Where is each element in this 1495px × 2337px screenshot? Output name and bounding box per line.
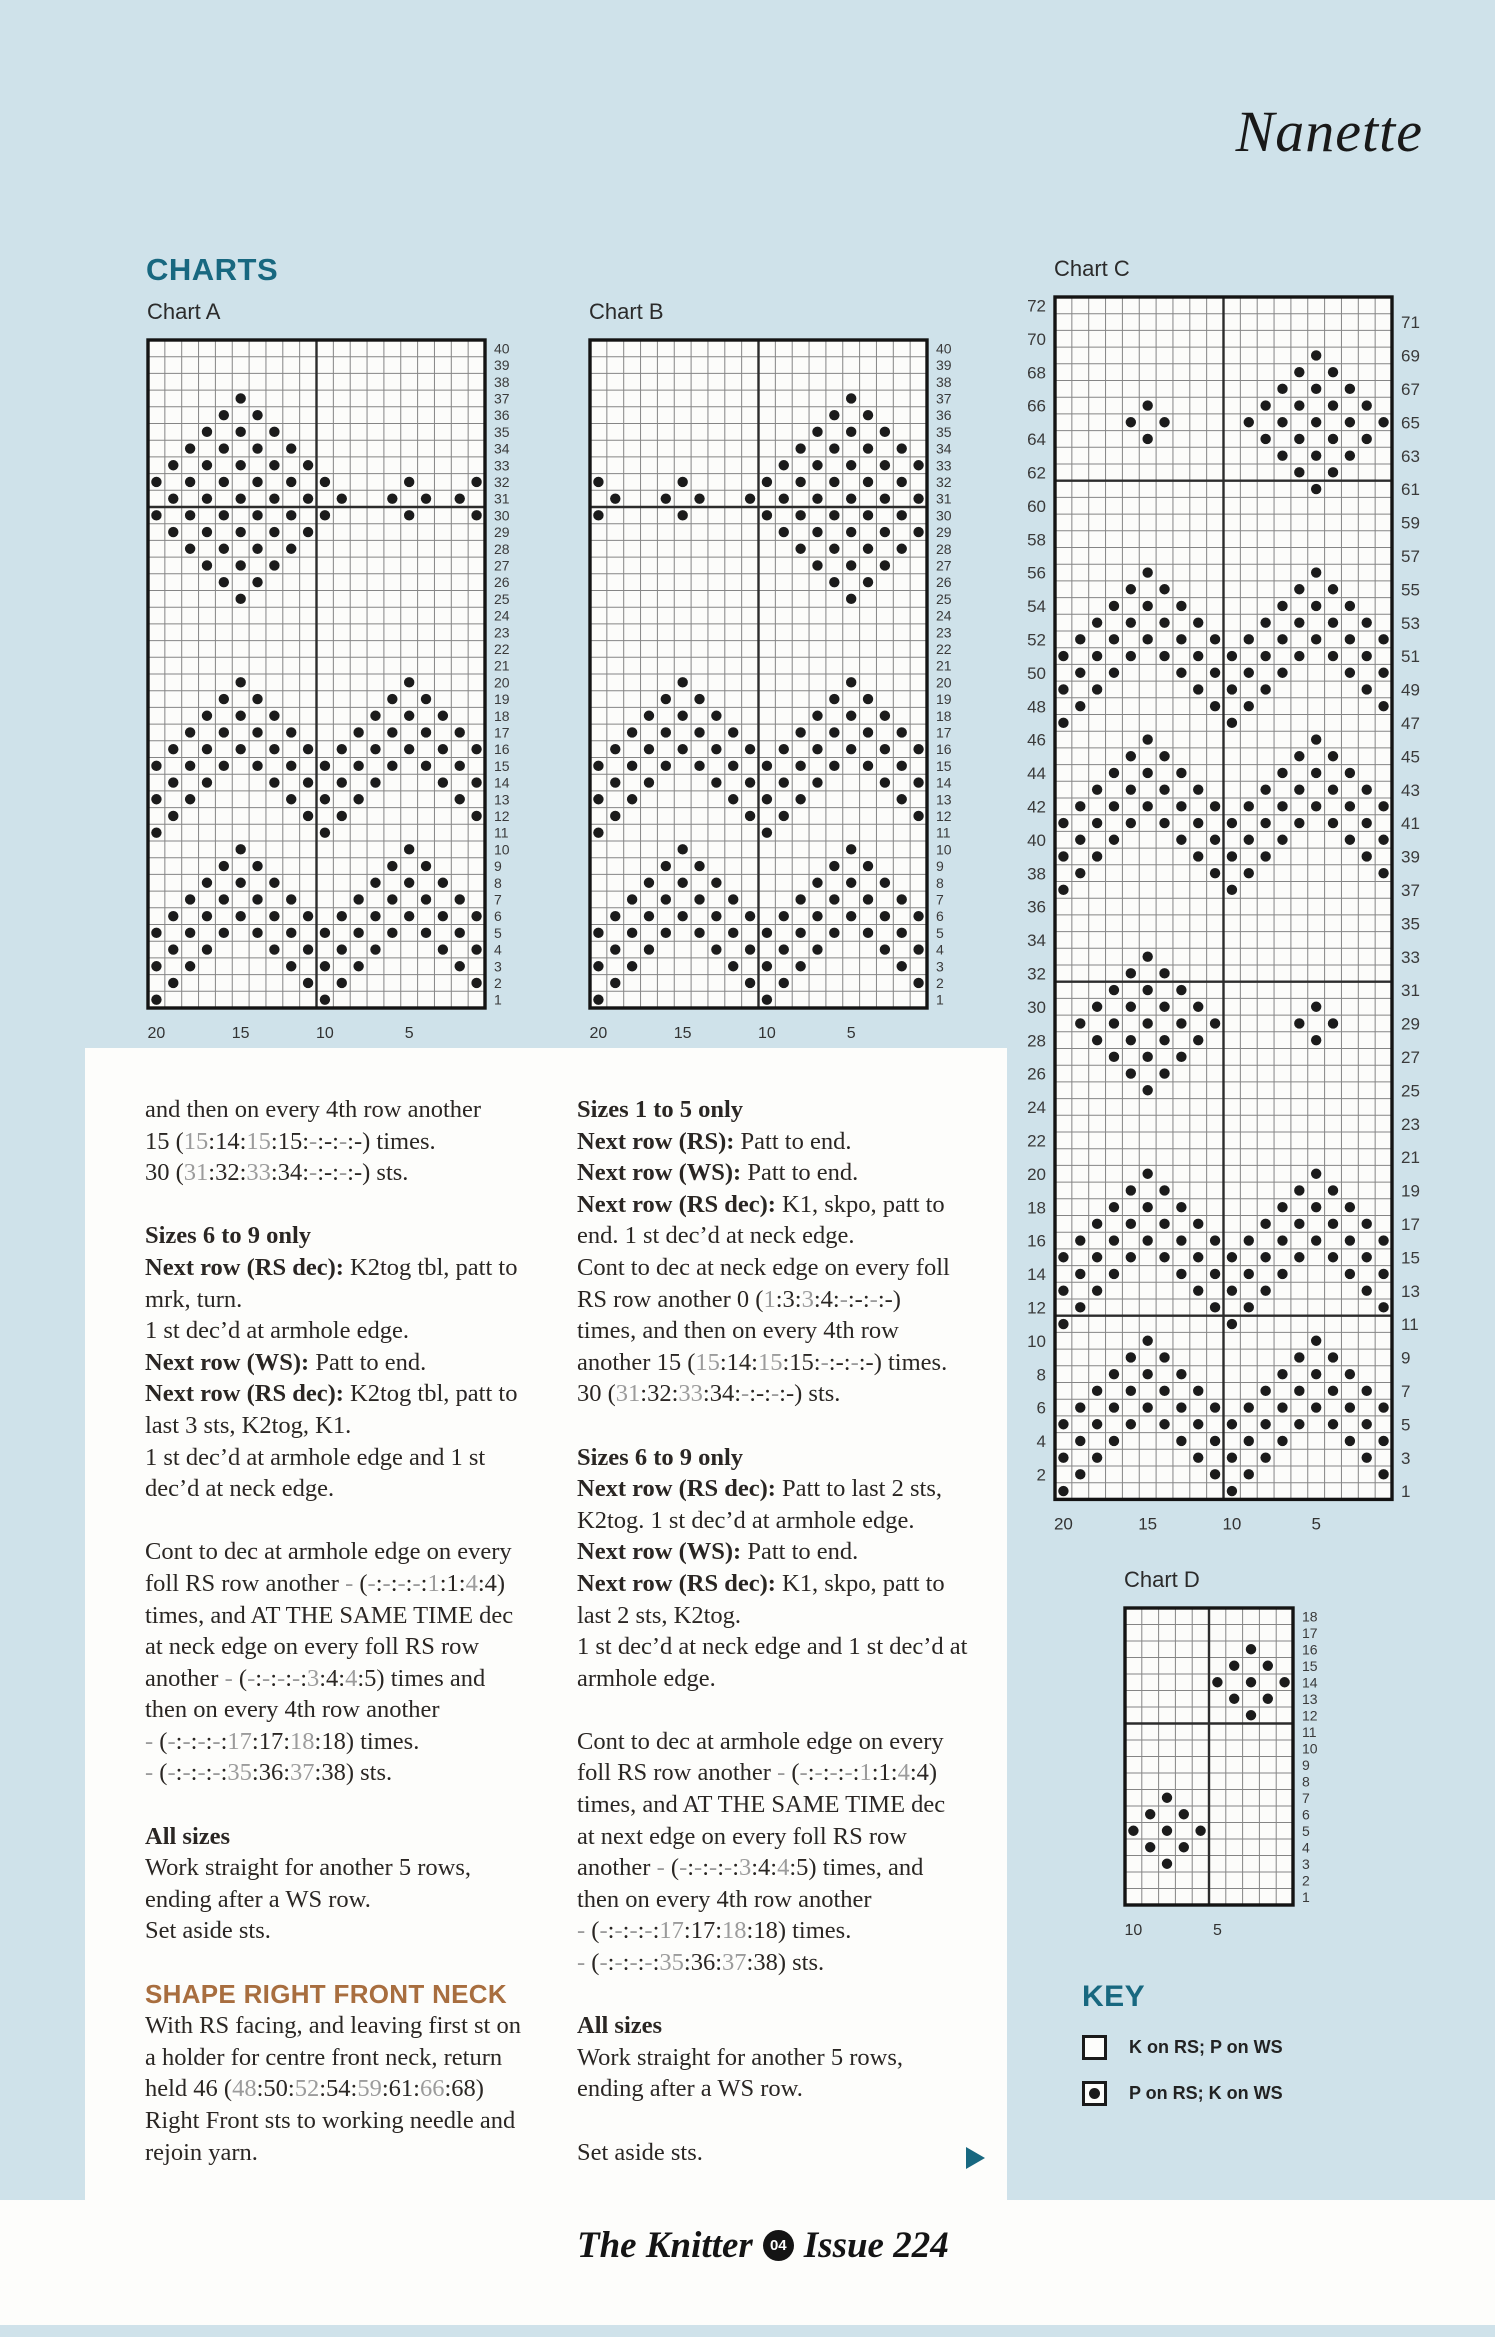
svg-text:53: 53 bbox=[1401, 614, 1420, 633]
svg-text:61: 61 bbox=[1401, 480, 1420, 499]
svg-text:55: 55 bbox=[1401, 580, 1420, 599]
text-line: ending after a WS row. bbox=[577, 2073, 1007, 2105]
svg-text:15: 15 bbox=[494, 758, 510, 774]
chart-b-grid: 1234567891011121314151617181920212223242… bbox=[584, 334, 977, 1058]
svg-text:17: 17 bbox=[936, 724, 952, 740]
text-block: and then on every 4th row another15 (15:… bbox=[145, 1094, 570, 1189]
svg-text:5: 5 bbox=[936, 925, 944, 941]
svg-text:5: 5 bbox=[1311, 1514, 1320, 1533]
svg-text:9: 9 bbox=[1302, 1757, 1310, 1773]
row-number-labels: 123456789101112131415161718 bbox=[1302, 1608, 1318, 1905]
svg-text:15: 15 bbox=[1138, 1514, 1157, 1533]
svg-text:12: 12 bbox=[936, 808, 952, 824]
svg-text:2: 2 bbox=[936, 975, 944, 991]
svg-text:20: 20 bbox=[590, 1025, 608, 1042]
svg-text:11: 11 bbox=[494, 825, 509, 841]
svg-text:18: 18 bbox=[936, 708, 952, 724]
text-line: Next row (RS dec): K1, skpo, patt to bbox=[577, 1568, 1007, 1600]
svg-text:63: 63 bbox=[1401, 447, 1420, 466]
svg-text:26: 26 bbox=[936, 574, 952, 590]
svg-text:17: 17 bbox=[1401, 1215, 1420, 1234]
svg-text:6: 6 bbox=[494, 908, 502, 924]
svg-text:5: 5 bbox=[847, 1025, 856, 1042]
svg-text:32: 32 bbox=[936, 474, 952, 490]
text-line: K2tog. 1 st dec’d at armhole edge. bbox=[577, 1505, 1007, 1537]
svg-text:28: 28 bbox=[1027, 1031, 1046, 1050]
svg-text:16: 16 bbox=[1027, 1232, 1046, 1251]
svg-text:38: 38 bbox=[936, 374, 952, 390]
svg-text:12: 12 bbox=[1302, 1707, 1318, 1723]
text-line: SHAPE RIGHT FRONT NECK bbox=[145, 1979, 570, 2011]
svg-text:22: 22 bbox=[494, 641, 510, 657]
chart-d-grid: 123456789101112131415161718105 bbox=[1119, 1602, 1343, 1955]
svg-text:6: 6 bbox=[936, 908, 944, 924]
text-line: another - (-:-:-:-:3:4:4:5) times, and bbox=[577, 1852, 1007, 1884]
svg-text:41: 41 bbox=[1401, 814, 1420, 833]
text-line: Next row (RS): Patt to end. bbox=[577, 1126, 1007, 1158]
text-block: All sizesWork straight for another 5 row… bbox=[145, 1821, 570, 1947]
svg-text:1: 1 bbox=[936, 992, 944, 1008]
issue-badge: 04 bbox=[763, 2230, 794, 2261]
svg-text:33: 33 bbox=[936, 457, 952, 473]
svg-text:35: 35 bbox=[494, 424, 510, 440]
svg-text:4: 4 bbox=[1037, 1432, 1046, 1451]
svg-text:54: 54 bbox=[1027, 597, 1046, 616]
svg-text:70: 70 bbox=[1027, 330, 1046, 349]
text-line: foll RS row another - (-:-:-:-:1:1:4:4) bbox=[577, 1757, 1007, 1789]
svg-text:33: 33 bbox=[494, 457, 510, 473]
text-line: 1 st dec’d at armhole edge and 1 st bbox=[145, 1442, 570, 1474]
svg-text:10: 10 bbox=[936, 841, 952, 857]
svg-text:14: 14 bbox=[1302, 1674, 1318, 1690]
svg-text:17: 17 bbox=[1302, 1625, 1318, 1641]
chart-c: Chart C123456789101112131415161718192021… bbox=[1017, 291, 1442, 1554]
footer-band bbox=[0, 2200, 1495, 2337]
svg-text:8: 8 bbox=[936, 875, 944, 891]
svg-text:14: 14 bbox=[494, 775, 510, 791]
magazine-page: Nanette CHARTS Chart A123456789101112131… bbox=[0, 0, 1495, 2337]
chart-c-label: Chart C bbox=[1054, 256, 1130, 282]
svg-text:9: 9 bbox=[494, 858, 502, 874]
key-item: K on RS; P on WS bbox=[1082, 2035, 1283, 2060]
svg-text:11: 11 bbox=[1401, 1315, 1419, 1334]
svg-text:16: 16 bbox=[1302, 1641, 1318, 1657]
svg-text:11: 11 bbox=[936, 825, 951, 841]
text-line: RS row another 0 (1:3:3:4:-:-:-:-) bbox=[577, 1284, 1007, 1316]
svg-text:37: 37 bbox=[494, 390, 510, 406]
svg-text:22: 22 bbox=[936, 641, 952, 657]
svg-text:5: 5 bbox=[494, 925, 502, 941]
svg-text:7: 7 bbox=[1302, 1790, 1310, 1806]
svg-text:24: 24 bbox=[1027, 1098, 1046, 1117]
svg-text:72: 72 bbox=[1027, 296, 1046, 315]
text-line: at next edge on every foll RS row bbox=[577, 1821, 1007, 1853]
text-line: and then on every 4th row another bbox=[145, 1094, 570, 1126]
svg-text:65: 65 bbox=[1401, 413, 1420, 432]
text-line: Work straight for another 5 rows, bbox=[145, 1852, 570, 1884]
svg-text:20: 20 bbox=[494, 674, 510, 690]
svg-text:4: 4 bbox=[494, 942, 502, 958]
text-block: Cont to dec at armhole edge on everyfoll… bbox=[577, 1726, 1007, 1979]
text-line: Next row (WS): Patt to end. bbox=[145, 1347, 570, 1379]
svg-text:27: 27 bbox=[936, 557, 952, 573]
svg-text:7: 7 bbox=[494, 891, 502, 907]
svg-text:39: 39 bbox=[1401, 848, 1420, 867]
svg-text:5: 5 bbox=[1213, 1922, 1222, 1939]
svg-text:24: 24 bbox=[936, 608, 952, 624]
svg-text:10: 10 bbox=[1302, 1740, 1318, 1756]
text-line: a holder for centre front neck, return bbox=[145, 2042, 570, 2074]
svg-text:36: 36 bbox=[936, 407, 952, 423]
text-line: Next row (RS dec): K1, skpo, patt to bbox=[577, 1189, 1007, 1221]
text-line: 30 (31:32:33:34:-:-:-:-) sts. bbox=[577, 1378, 1007, 1410]
text-line: Set aside sts. bbox=[577, 2137, 1007, 2169]
svg-text:18: 18 bbox=[494, 708, 510, 724]
text-block: Sizes 6 to 9 onlyNext row (RS dec): Patt… bbox=[577, 1442, 1007, 1695]
svg-text:17: 17 bbox=[494, 724, 510, 740]
stitch-number-labels: 2015105 bbox=[148, 1025, 414, 1042]
svg-text:15: 15 bbox=[232, 1025, 250, 1042]
issue-number: Issue 224 bbox=[804, 2224, 949, 2267]
page-footer: The Knitter 04 Issue 224 bbox=[577, 2224, 949, 2267]
svg-text:33: 33 bbox=[1401, 948, 1420, 967]
text-line: Sizes 6 to 9 only bbox=[145, 1220, 570, 1252]
text-line: Work straight for another 5 rows, bbox=[577, 2042, 1007, 2074]
svg-text:10: 10 bbox=[1027, 1332, 1046, 1351]
svg-text:9: 9 bbox=[936, 858, 944, 874]
svg-text:60: 60 bbox=[1027, 497, 1046, 516]
svg-text:19: 19 bbox=[936, 691, 952, 707]
svg-text:66: 66 bbox=[1027, 397, 1046, 416]
svg-text:57: 57 bbox=[1401, 547, 1420, 566]
svg-text:13: 13 bbox=[1401, 1282, 1420, 1301]
svg-text:22: 22 bbox=[1027, 1131, 1046, 1150]
dot-square-icon bbox=[1082, 2081, 1107, 2106]
svg-text:27: 27 bbox=[494, 557, 510, 573]
svg-text:62: 62 bbox=[1027, 463, 1046, 482]
text-line: 1 st dec’d at neck edge and 1 st dec’d a… bbox=[577, 1631, 1007, 1663]
svg-text:15: 15 bbox=[1401, 1248, 1420, 1267]
continuation-arrow-icon bbox=[966, 2147, 985, 2169]
text-line: With RS facing, and leaving first st on bbox=[145, 2010, 570, 2042]
svg-text:31: 31 bbox=[494, 491, 510, 507]
svg-text:10: 10 bbox=[1222, 1514, 1241, 1533]
svg-text:3: 3 bbox=[936, 958, 944, 974]
svg-text:40: 40 bbox=[1027, 831, 1046, 850]
text-line: Next row (RS dec): K2tog tbl, patt to bbox=[145, 1252, 570, 1284]
chart-b: Chart B123456789101112131415161718192021… bbox=[584, 334, 977, 1063]
svg-text:38: 38 bbox=[1027, 864, 1046, 883]
text-line: another 15 (15:14:15:15:-:-:-:-) times. bbox=[577, 1347, 1007, 1379]
svg-text:8: 8 bbox=[1037, 1365, 1046, 1384]
svg-text:1: 1 bbox=[1302, 1889, 1310, 1905]
svg-text:59: 59 bbox=[1401, 514, 1420, 533]
svg-text:19: 19 bbox=[494, 691, 510, 707]
svg-text:4: 4 bbox=[936, 942, 944, 958]
svg-text:15: 15 bbox=[674, 1025, 692, 1042]
svg-text:39: 39 bbox=[494, 357, 510, 373]
text-line: mrk, turn. bbox=[145, 1284, 570, 1316]
svg-text:2: 2 bbox=[1037, 1465, 1046, 1484]
svg-text:35: 35 bbox=[1401, 914, 1420, 933]
svg-text:7: 7 bbox=[936, 891, 944, 907]
svg-text:20: 20 bbox=[1054, 1514, 1073, 1533]
svg-text:13: 13 bbox=[494, 791, 510, 807]
chart-d-label: Chart D bbox=[1124, 1567, 1200, 1593]
text-block: Cont to dec at armhole edge on everyfoll… bbox=[145, 1536, 570, 1789]
svg-text:36: 36 bbox=[1027, 898, 1046, 917]
key-item-label: P on RS; K on WS bbox=[1129, 2083, 1283, 2104]
svg-text:8: 8 bbox=[494, 875, 502, 891]
svg-text:26: 26 bbox=[1027, 1065, 1046, 1084]
text-line: 30 (31:32:33:34:-:-:-:-) sts. bbox=[145, 1157, 570, 1189]
svg-text:25: 25 bbox=[936, 591, 952, 607]
svg-text:21: 21 bbox=[494, 658, 510, 674]
svg-text:56: 56 bbox=[1027, 564, 1046, 583]
text-line: times, and then on every 4th row bbox=[577, 1315, 1007, 1347]
text-block: With RS facing, and leaving first st ona… bbox=[145, 2010, 570, 2168]
text-line: - (-:-:-:-:35:36:37:38) sts. bbox=[145, 1757, 570, 1789]
svg-text:20: 20 bbox=[148, 1025, 166, 1042]
svg-text:39: 39 bbox=[936, 357, 952, 373]
svg-text:10: 10 bbox=[758, 1025, 776, 1042]
text-line: Next row (RS dec): K2tog tbl, patt to bbox=[145, 1378, 570, 1410]
svg-text:47: 47 bbox=[1401, 714, 1420, 733]
text-line: last 2 sts, K2tog. bbox=[577, 1600, 1007, 1632]
svg-text:27: 27 bbox=[1401, 1048, 1420, 1067]
chart-a-label: Chart A bbox=[147, 299, 220, 325]
svg-text:14: 14 bbox=[1027, 1265, 1046, 1284]
svg-text:37: 37 bbox=[936, 390, 952, 406]
svg-text:71: 71 bbox=[1401, 313, 1420, 332]
svg-text:46: 46 bbox=[1027, 731, 1046, 750]
svg-text:1: 1 bbox=[494, 992, 502, 1008]
text-line: 1 st dec’d at armhole edge. bbox=[145, 1315, 570, 1347]
svg-text:44: 44 bbox=[1027, 764, 1046, 783]
instructions-column-1: and then on every 4th row another15 (15:… bbox=[145, 1094, 570, 2200]
svg-text:50: 50 bbox=[1027, 664, 1046, 683]
svg-text:40: 40 bbox=[936, 340, 952, 356]
svg-text:40: 40 bbox=[494, 340, 510, 356]
text-line: - (-:-:-:-:17:17:18:18) times. bbox=[577, 1915, 1007, 1947]
svg-text:31: 31 bbox=[936, 491, 952, 507]
svg-text:8: 8 bbox=[1302, 1773, 1310, 1789]
svg-text:29: 29 bbox=[1401, 1015, 1420, 1034]
svg-text:21: 21 bbox=[1401, 1148, 1420, 1167]
svg-text:38: 38 bbox=[494, 374, 510, 390]
text-line: Cont to dec at armhole edge on every bbox=[145, 1536, 570, 1568]
svg-text:10: 10 bbox=[494, 841, 510, 857]
text-line: 15 (15:14:15:15:-:-:-:-) times. bbox=[145, 1126, 570, 1158]
text-line: All sizes bbox=[145, 1821, 570, 1853]
svg-text:16: 16 bbox=[936, 741, 952, 757]
svg-text:7: 7 bbox=[1401, 1382, 1410, 1401]
text-block: Set aside sts. bbox=[577, 2137, 1007, 2169]
svg-text:1: 1 bbox=[1401, 1482, 1410, 1501]
svg-text:6: 6 bbox=[1302, 1806, 1310, 1822]
svg-text:2: 2 bbox=[1302, 1872, 1310, 1888]
text-line: Right Front sts to working needle and bbox=[145, 2105, 570, 2137]
svg-text:26: 26 bbox=[494, 574, 510, 590]
text-line: dec’d at neck edge. bbox=[145, 1473, 570, 1505]
text-line: Sizes 6 to 9 only bbox=[577, 1442, 1007, 1474]
svg-text:28: 28 bbox=[494, 541, 510, 557]
svg-text:29: 29 bbox=[936, 524, 952, 540]
svg-text:23: 23 bbox=[494, 624, 510, 640]
text-line: Sizes 1 to 5 only bbox=[577, 1094, 1007, 1126]
svg-text:15: 15 bbox=[936, 758, 952, 774]
svg-text:28: 28 bbox=[936, 541, 952, 557]
empty-square-icon bbox=[1082, 2035, 1107, 2060]
svg-text:5: 5 bbox=[1302, 1823, 1310, 1839]
text-line: ending after a WS row. bbox=[145, 1884, 570, 1916]
key-heading: KEY bbox=[1082, 1980, 1283, 2014]
svg-text:23: 23 bbox=[936, 624, 952, 640]
svg-text:12: 12 bbox=[1027, 1298, 1046, 1317]
svg-text:20: 20 bbox=[936, 674, 952, 690]
svg-text:42: 42 bbox=[1027, 797, 1046, 816]
text-block: Sizes 1 to 5 onlyNext row (RS): Patt to … bbox=[577, 1094, 1007, 1410]
svg-text:5: 5 bbox=[405, 1025, 414, 1042]
pattern-title: Nanette bbox=[1236, 98, 1423, 165]
svg-text:18: 18 bbox=[1302, 1608, 1318, 1624]
svg-text:31: 31 bbox=[1401, 981, 1420, 1000]
svg-text:10: 10 bbox=[1125, 1922, 1143, 1939]
bottom-edge-strip bbox=[0, 2325, 1495, 2337]
svg-text:16: 16 bbox=[494, 741, 510, 757]
svg-text:37: 37 bbox=[1401, 881, 1420, 900]
chart-a-grid: 1234567891011121314151617181920212223242… bbox=[142, 334, 535, 1058]
svg-text:18: 18 bbox=[1027, 1198, 1046, 1217]
svg-text:36: 36 bbox=[494, 407, 510, 423]
svg-text:68: 68 bbox=[1027, 363, 1046, 382]
text-line: All sizes bbox=[577, 2010, 1007, 2042]
svg-text:15: 15 bbox=[1302, 1658, 1318, 1674]
text-line: Next row (RS dec): Patt to last 2 sts, bbox=[577, 1473, 1007, 1505]
text-block: Sizes 6 to 9 onlyNext row (RS dec): K2to… bbox=[145, 1220, 570, 1504]
svg-text:34: 34 bbox=[1027, 931, 1046, 950]
svg-text:13: 13 bbox=[936, 791, 952, 807]
svg-text:51: 51 bbox=[1401, 647, 1420, 666]
stitch-number-labels: 2015105 bbox=[590, 1025, 856, 1042]
text-line: foll RS row another - (-:-:-:-:1:1:4:4) bbox=[145, 1568, 570, 1600]
chart-a: Chart A123456789101112131415161718192021… bbox=[142, 334, 535, 1063]
text-line: then on every 4th row another bbox=[577, 1884, 1007, 1916]
key-items: K on RS; P on WSP on RS; K on WS bbox=[1082, 2035, 1283, 2106]
text-line: then on every 4th row another bbox=[145, 1694, 570, 1726]
svg-text:67: 67 bbox=[1401, 380, 1420, 399]
text-block: All sizesWork straight for another 5 row… bbox=[577, 2010, 1007, 2105]
row-number-labels: 1234567891011121314151617181920212223242… bbox=[936, 340, 952, 1007]
text-line: Next row (WS): Patt to end. bbox=[577, 1536, 1007, 1568]
key-section: KEY K on RS; P on WSP on RS; K on WS bbox=[1082, 1980, 1283, 2106]
svg-text:48: 48 bbox=[1027, 697, 1046, 716]
text-line: last 3 sts, K2tog, K1. bbox=[145, 1410, 570, 1442]
svg-text:10: 10 bbox=[316, 1025, 334, 1042]
svg-text:11: 11 bbox=[1302, 1724, 1317, 1740]
magazine-name: The Knitter bbox=[577, 2224, 753, 2267]
svg-text:49: 49 bbox=[1401, 681, 1420, 700]
svg-text:25: 25 bbox=[1401, 1081, 1420, 1100]
svg-text:34: 34 bbox=[936, 441, 952, 457]
chart-d: Chart D123456789101112131415161718105 bbox=[1119, 1602, 1343, 1960]
text-line: rejoin yarn. bbox=[145, 2137, 570, 2169]
text-line: armhole edge. bbox=[577, 1663, 1007, 1695]
svg-text:30: 30 bbox=[1027, 998, 1046, 1017]
svg-text:21: 21 bbox=[936, 658, 952, 674]
charts-heading: CHARTS bbox=[146, 252, 278, 288]
row-number-labels: 1234567891011121314151617181920212223242… bbox=[494, 340, 510, 1007]
svg-text:52: 52 bbox=[1027, 630, 1046, 649]
svg-text:19: 19 bbox=[1401, 1182, 1420, 1201]
text-line: times, and AT THE SAME TIME dec bbox=[577, 1789, 1007, 1821]
svg-text:35: 35 bbox=[936, 424, 952, 440]
instructions-column-2: Sizes 1 to 5 onlyNext row (RS): Patt to … bbox=[577, 1094, 1007, 2200]
key-item-label: K on RS; P on WS bbox=[1129, 2037, 1283, 2058]
text-line: Cont to dec at neck edge on every foll bbox=[577, 1252, 1007, 1284]
svg-text:6: 6 bbox=[1037, 1399, 1046, 1418]
chart-b-label: Chart B bbox=[589, 299, 664, 325]
svg-text:32: 32 bbox=[1027, 964, 1046, 983]
svg-text:45: 45 bbox=[1401, 747, 1420, 766]
svg-text:12: 12 bbox=[494, 808, 510, 824]
svg-text:24: 24 bbox=[494, 608, 510, 624]
text-line: end. 1 st dec’d at neck edge. bbox=[577, 1220, 1007, 1252]
text-line: times, and AT THE SAME TIME dec bbox=[145, 1600, 570, 1632]
svg-text:32: 32 bbox=[494, 474, 510, 490]
svg-text:3: 3 bbox=[1302, 1856, 1310, 1872]
svg-text:30: 30 bbox=[494, 507, 510, 523]
text-line: Cont to dec at armhole edge on every bbox=[577, 1726, 1007, 1758]
svg-text:20: 20 bbox=[1027, 1165, 1046, 1184]
svg-text:3: 3 bbox=[494, 958, 502, 974]
svg-text:30: 30 bbox=[936, 507, 952, 523]
text-line: another - (-:-:-:-:3:4:4:5) times and bbox=[145, 1663, 570, 1695]
svg-text:25: 25 bbox=[494, 591, 510, 607]
svg-text:69: 69 bbox=[1401, 347, 1420, 366]
svg-text:13: 13 bbox=[1302, 1691, 1318, 1707]
svg-text:3: 3 bbox=[1401, 1449, 1410, 1468]
text-line: - (-:-:-:-:35:36:37:38) sts. bbox=[577, 1947, 1007, 1979]
purl-dot-icon bbox=[1089, 2088, 1100, 2099]
svg-text:4: 4 bbox=[1302, 1839, 1310, 1855]
svg-text:5: 5 bbox=[1401, 1415, 1410, 1434]
chart-c-grid: 1234567891011121314151617181920212223242… bbox=[1017, 291, 1442, 1549]
svg-text:64: 64 bbox=[1027, 430, 1046, 449]
text-line: Set aside sts. bbox=[145, 1915, 570, 1947]
svg-text:14: 14 bbox=[936, 775, 952, 791]
svg-text:2: 2 bbox=[494, 975, 502, 991]
svg-text:29: 29 bbox=[494, 524, 510, 540]
svg-text:34: 34 bbox=[494, 441, 510, 457]
stitch-number-labels: 2015105 bbox=[1054, 1514, 1321, 1533]
svg-text:43: 43 bbox=[1401, 781, 1420, 800]
svg-text:9: 9 bbox=[1401, 1349, 1410, 1368]
text-line: - (-:-:-:-:17:17:18:18) times. bbox=[145, 1726, 570, 1758]
svg-text:58: 58 bbox=[1027, 530, 1046, 549]
text-line: held 46 (48:50:52:54:59:61:66:68) bbox=[145, 2073, 570, 2105]
svg-text:23: 23 bbox=[1401, 1115, 1420, 1134]
section-heading: SHAPE RIGHT FRONT NECK bbox=[145, 1979, 570, 2011]
text-line: at neck edge on every foll RS row bbox=[145, 1631, 570, 1663]
stitch-number-labels: 105 bbox=[1125, 1922, 1222, 1939]
text-line: Next row (WS): Patt to end. bbox=[577, 1157, 1007, 1189]
key-item: P on RS; K on WS bbox=[1082, 2081, 1283, 2106]
